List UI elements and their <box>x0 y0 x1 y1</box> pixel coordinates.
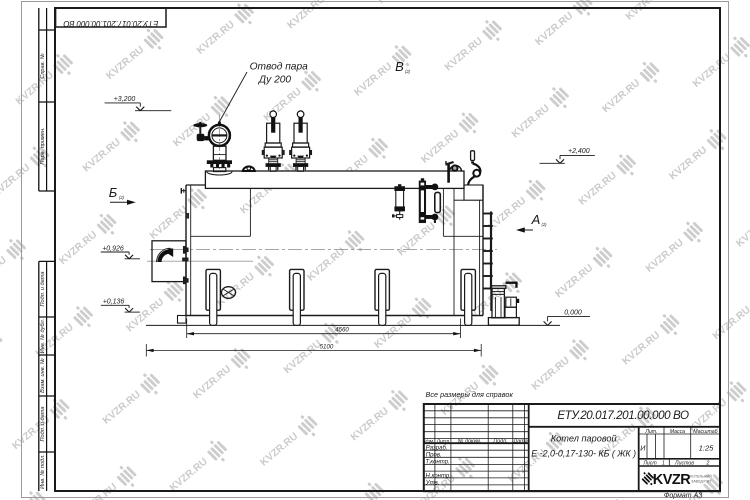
svg-text:ЗАВОД РЭП: ЗАВОД РЭП <box>691 480 711 484</box>
svg-text:Масштаб: Масштаб <box>693 429 718 435</box>
svg-text:Т.контр.: Т.контр. <box>426 460 450 466</box>
svg-text:2: 2 <box>706 461 710 467</box>
svg-text:Б: Б <box>109 185 118 200</box>
svg-text:Подп. и дата: Подп. и дата <box>40 406 46 441</box>
svg-text:И: И <box>640 443 646 452</box>
svg-text:Листов: Листов <box>674 461 694 467</box>
svg-text:Ду 200: Ду 200 <box>258 75 292 86</box>
svg-text:Изм.: Изм. <box>424 438 434 444</box>
svg-text:№ докум.: № докум. <box>458 439 482 445</box>
svg-text:1: 1 <box>662 461 665 467</box>
svg-text:Разраб.: Разраб. <box>426 445 448 451</box>
svg-text:Н.контр.: Н.контр. <box>426 473 451 479</box>
svg-text:(2): (2) <box>541 222 547 227</box>
svg-text:Отвод пара: Отвод пара <box>250 62 309 73</box>
svg-text:+0,136: +0,136 <box>103 299 125 306</box>
svg-text:+2,400: +2,400 <box>568 148 590 155</box>
svg-text:Справ. №: Справ. № <box>40 53 46 78</box>
svg-text:ЕТУ.20.017.201.00.000 ВО: ЕТУ.20.017.201.00.000 ВО <box>557 409 689 422</box>
svg-text:5100: 5100 <box>320 343 334 350</box>
svg-text:(2): (2) <box>119 195 125 200</box>
svg-text:Все размеры для справок: Все размеры для справок <box>426 390 514 399</box>
svg-text:Масса: Масса <box>670 429 685 435</box>
svg-text:ЕТУ.20.017.201.00.000 ВО: ЕТУ.20.017.201.00.000 ВО <box>63 19 158 28</box>
svg-text:Дата: Дата <box>512 439 527 445</box>
svg-text:Взам. инв. №: Взам. инв. № <box>40 358 46 393</box>
svg-text:1:25: 1:25 <box>699 443 715 452</box>
svg-text:Формат А3: Формат А3 <box>664 493 702 500</box>
svg-text:КОТЕЛЬНЫЙ: КОТЕЛЬНЫЙ <box>690 475 712 479</box>
svg-text:В: В <box>395 59 404 74</box>
svg-text:Е -2,0-0,17-130- КБ ( ЖК ): Е -2,0-0,17-130- КБ ( ЖК ) <box>531 449 636 459</box>
svg-text:Лит.: Лит. <box>644 429 657 435</box>
svg-text:А: А <box>531 212 541 227</box>
svg-text:Лист: Лист <box>642 461 657 467</box>
svg-text:Инв. № подл.: Инв. № подл. <box>40 454 46 489</box>
svg-text:0,000: 0,000 <box>564 309 582 316</box>
svg-text:Утв.: Утв. <box>425 480 440 486</box>
svg-text:+0,926: +0,926 <box>102 245 124 252</box>
svg-text:Лист: Лист <box>436 438 450 444</box>
svg-text:(2): (2) <box>405 69 411 74</box>
svg-text:Подп. и дата: Подп. и дата <box>40 271 46 306</box>
svg-text:Перв. примен.: Перв. примен. <box>40 127 46 164</box>
svg-text:4560: 4560 <box>335 327 349 334</box>
svg-text:Пров.: Пров. <box>426 452 442 458</box>
svg-text:Подп.: Подп. <box>493 439 507 445</box>
svg-text:Котел паровой: Котел паровой <box>551 434 617 444</box>
svg-text:+3,200: +3,200 <box>114 96 136 103</box>
svg-text:Инв. № дубл.: Инв. № дубл. <box>40 319 46 353</box>
svg-text:KVZR: KVZR <box>653 472 692 488</box>
